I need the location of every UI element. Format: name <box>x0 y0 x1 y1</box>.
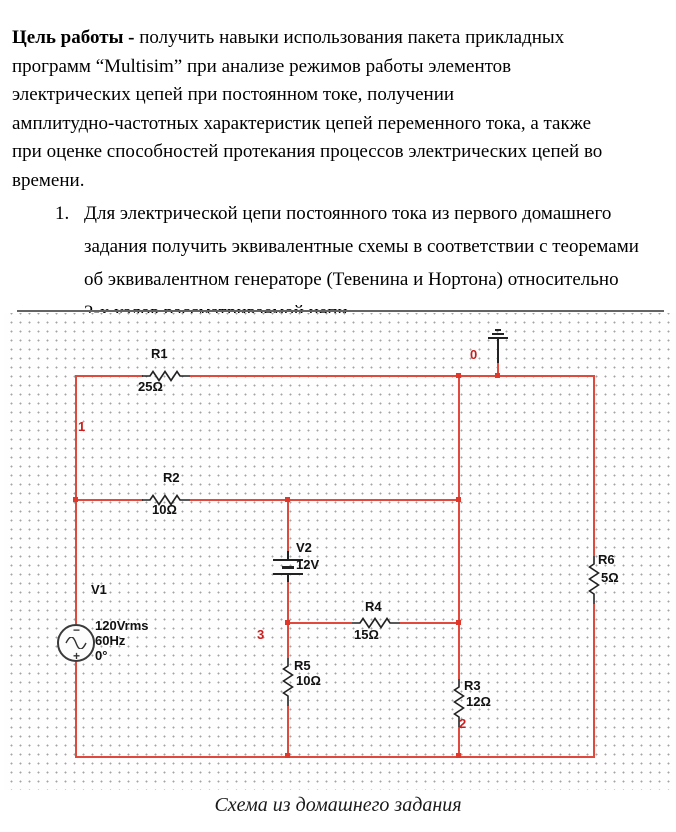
junction-dot <box>495 373 500 378</box>
r5-resistor-symbol <box>282 658 294 706</box>
v1-label: V1 <box>91 583 107 597</box>
wire-segment <box>287 622 352 624</box>
wire-segment <box>458 375 460 679</box>
node-label-2: 2 <box>459 717 466 731</box>
r6-value: 5Ω <box>601 571 619 585</box>
ground-icon <box>488 337 508 339</box>
node-label-1: 1 <box>78 420 85 434</box>
intro-paragraph: Цель работы - получить навыки использова… <box>12 24 602 195</box>
wire-segment <box>75 499 143 501</box>
r2-label: R2 <box>163 471 180 485</box>
intro-body-text: получить навыки использования пакета при… <box>12 27 602 191</box>
wire-segment <box>75 662 77 756</box>
wire-segment <box>458 727 460 756</box>
junction-dot <box>285 620 290 625</box>
junction-dot <box>456 497 461 502</box>
task-list-number: 1. <box>55 197 69 230</box>
node-label-0: 0 <box>470 348 477 362</box>
v1-value: 120Vrms 60Hz 0° <box>95 618 149 663</box>
wire-segment <box>593 604 595 756</box>
battery-icon <box>287 551 289 559</box>
wire-segment <box>190 375 595 377</box>
intro-bold-lead: Цель работы - <box>12 27 139 48</box>
r4-label: R4 <box>365 600 382 614</box>
battery-icon <box>282 566 294 569</box>
v1-plus-sign: + <box>70 649 83 663</box>
figure-caption: Схема из домашнего задания <box>0 794 676 817</box>
r1-label: R1 <box>151 347 168 361</box>
junction-dot <box>285 497 290 502</box>
junction-dot <box>285 753 290 758</box>
wire-segment <box>75 375 143 377</box>
r5-label: R5 <box>294 659 311 673</box>
r1-value: 25Ω <box>138 380 163 394</box>
r3-label: R3 <box>464 679 481 693</box>
junction-dot <box>456 620 461 625</box>
wire-segment <box>400 622 459 624</box>
node-label-3: 3 <box>257 628 264 642</box>
document-page: Цель работы - получить навыки использова… <box>0 0 676 832</box>
r3-value: 12Ω <box>466 695 491 709</box>
sine-wave-icon <box>65 637 87 649</box>
r6-label: R6 <box>598 553 615 567</box>
junction-dot <box>73 497 78 502</box>
wire-segment <box>287 706 289 756</box>
schematic-canvas <box>4 313 676 790</box>
v2-label: V2 <box>296 541 312 555</box>
canvas-top-border <box>17 310 664 312</box>
r2-value: 10Ω <box>152 503 177 517</box>
wire-segment <box>287 499 289 551</box>
r4-value: 15Ω <box>354 628 379 642</box>
ground-icon <box>495 329 501 331</box>
ground-icon <box>492 333 504 335</box>
wire-segment <box>593 375 595 556</box>
wire-segment <box>190 499 459 501</box>
battery-icon <box>287 575 289 582</box>
junction-dot <box>456 753 461 758</box>
wire-segment <box>75 756 595 758</box>
ground-icon <box>497 339 499 363</box>
v2-value: 12V <box>296 558 319 572</box>
r5-value: 10Ω <box>296 674 321 688</box>
v1-minus-sign: − <box>70 623 83 637</box>
junction-dot <box>456 373 461 378</box>
